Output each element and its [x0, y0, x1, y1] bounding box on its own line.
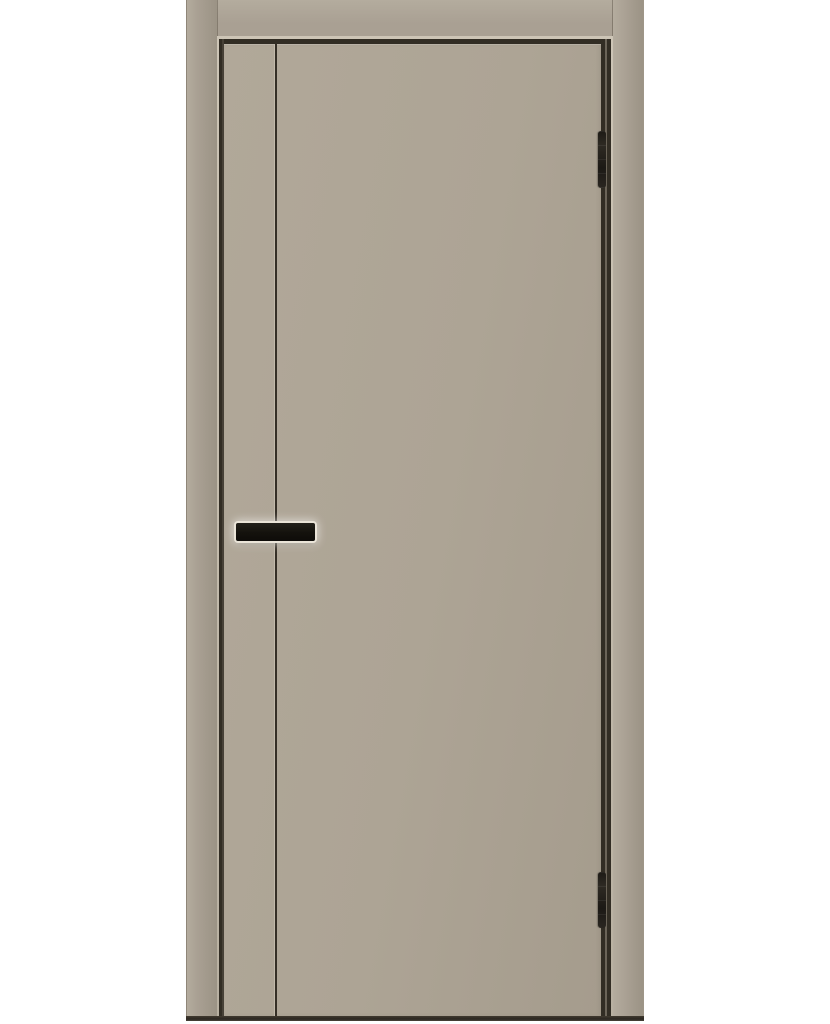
floor-shadow-line — [186, 1016, 644, 1021]
jamb-highlight-right — [611, 36, 613, 1016]
door-handle — [236, 523, 315, 541]
studio-background — [0, 0, 830, 1024]
door-casing-right — [613, 0, 644, 1016]
door-casing-left — [186, 0, 217, 1016]
bottom-hinge — [598, 872, 606, 928]
door-casing-top — [217, 0, 613, 39]
top-hinge — [598, 131, 606, 188]
